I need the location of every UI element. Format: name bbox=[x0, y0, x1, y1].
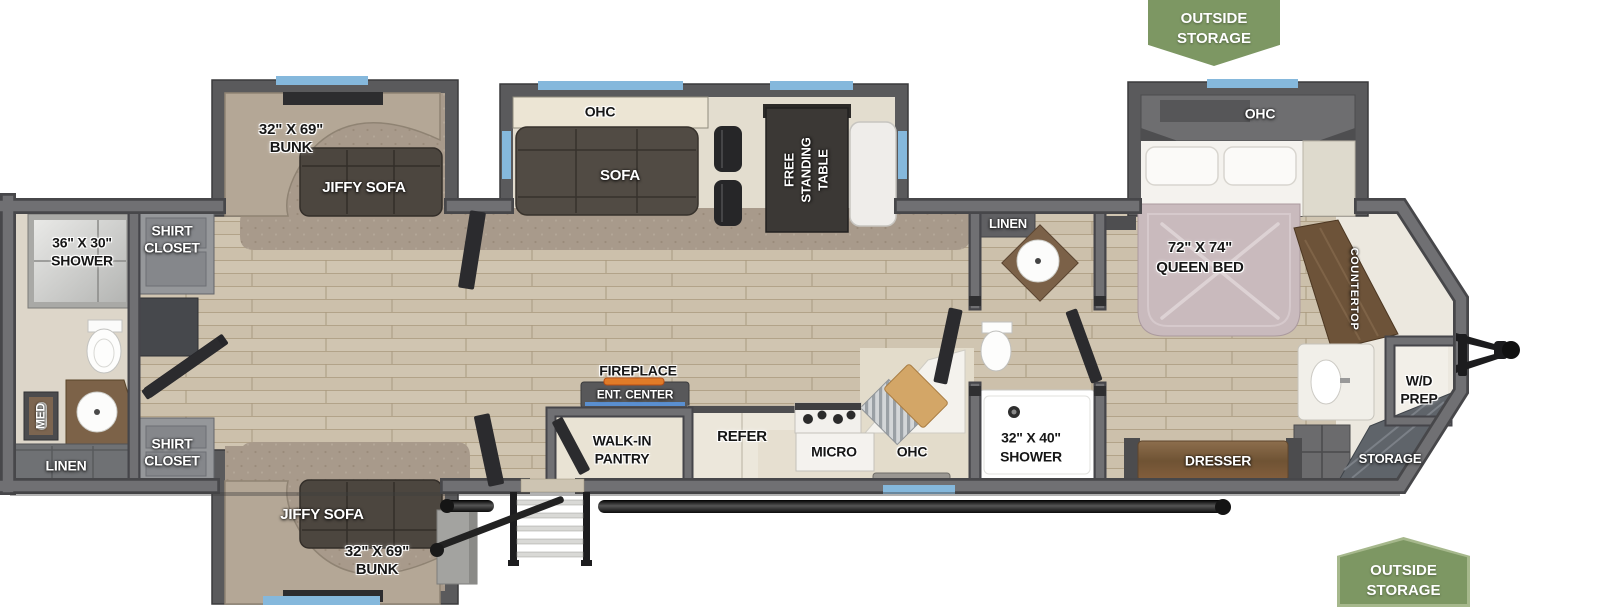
living-ohc-label: OHC bbox=[585, 104, 616, 119]
window bbox=[538, 81, 683, 90]
midbath-toilet bbox=[981, 331, 1011, 371]
bed-dim-label: 72" X 74" bbox=[1168, 240, 1232, 257]
badge-line: OUTSIDE bbox=[1148, 9, 1280, 29]
jiffy-sofa-top-label: JIFFY SOFA bbox=[322, 180, 406, 197]
rear-shower-label: SHOWER bbox=[51, 253, 113, 268]
window bbox=[898, 131, 907, 179]
sofa-label: SOFA bbox=[600, 168, 640, 185]
shirt-closet-top-label: SHIRT bbox=[151, 223, 192, 238]
toilet bbox=[87, 329, 121, 373]
pillow bbox=[1224, 147, 1296, 185]
dining-chair bbox=[714, 180, 742, 226]
window bbox=[770, 81, 853, 90]
table-label-line: FREE bbox=[782, 111, 799, 229]
badge-line: STORAGE bbox=[1148, 29, 1280, 49]
badge-line: STORAGE bbox=[1340, 581, 1467, 601]
wd-prep-label: W/D bbox=[1406, 373, 1433, 388]
jiffy-sofa-bottom-label: JIFFY SOFA bbox=[280, 507, 364, 524]
window bbox=[263, 596, 380, 605]
table-label-line: STANDING bbox=[799, 111, 816, 229]
rear-shower-dim-label: 36" X 30" bbox=[52, 235, 112, 250]
rear-linen-label: LINEN bbox=[45, 458, 86, 473]
table-label-line: TABLE bbox=[815, 111, 832, 229]
entry-threshold bbox=[521, 479, 584, 492]
window bbox=[1207, 79, 1298, 88]
bunk-top-label: BUNK bbox=[270, 140, 313, 157]
tv-bracket-top bbox=[283, 92, 383, 105]
fireplace-label: FIREPLACE bbox=[599, 363, 677, 378]
bedroom-ohc-label: OHC bbox=[1245, 106, 1276, 121]
kitchen-ohc-label: OHC bbox=[897, 444, 928, 459]
hitch bbox=[1456, 333, 1520, 376]
midbath-linen-label: LINEN bbox=[989, 217, 1027, 231]
bed-bench bbox=[1104, 216, 1136, 230]
dining-chair bbox=[714, 126, 742, 172]
bed-label: QUEEN BED bbox=[1156, 260, 1243, 277]
bunk-top-dim-label: 32" X 69" bbox=[259, 122, 323, 139]
wd-prep-label: PREP bbox=[1400, 391, 1437, 406]
pillow bbox=[1146, 147, 1218, 185]
rv-floorplan: OUTSIDE STORAGE OUTSIDE STORAGE 32" X 69… bbox=[0, 0, 1600, 614]
countertop-label: COUNTERTOP bbox=[1348, 248, 1360, 331]
badge-line: OUTSIDE bbox=[1340, 561, 1467, 581]
midbath-shower-label: SHOWER bbox=[1000, 449, 1062, 464]
shirt-closet-bottom-label: SHIRT bbox=[151, 436, 192, 451]
bunk-bottom-dim-label: 32" X 69" bbox=[345, 544, 409, 561]
micro-label: MICRO bbox=[811, 444, 857, 459]
bunk-bottom-label: BUNK bbox=[356, 562, 399, 579]
table-label: FREE STANDING TABLE bbox=[782, 111, 833, 229]
bedroom-sink bbox=[1311, 360, 1341, 404]
wardrobe bbox=[138, 298, 198, 356]
bench-seat bbox=[850, 122, 896, 226]
awning-rail bbox=[598, 500, 1226, 513]
midbath-shower-dim-label: 32" X 40" bbox=[1001, 430, 1061, 445]
pantry-label: PANTRY bbox=[595, 451, 650, 466]
shirt-closet-bottom-label: CLOSET bbox=[144, 453, 200, 468]
ent-center-label: ENT. CENTER bbox=[597, 388, 673, 401]
refer-label: REFER bbox=[717, 429, 767, 446]
dresser-label: DRESSER bbox=[1185, 453, 1251, 468]
window bbox=[276, 76, 368, 85]
pantry-label: WALK-IN bbox=[593, 433, 651, 448]
med-label: MED bbox=[34, 403, 47, 429]
window bbox=[502, 131, 511, 179]
shirt-closet-top-label: CLOSET bbox=[144, 240, 200, 255]
fireplace-flame bbox=[604, 378, 664, 385]
storage-label: STORAGE bbox=[1359, 452, 1422, 466]
